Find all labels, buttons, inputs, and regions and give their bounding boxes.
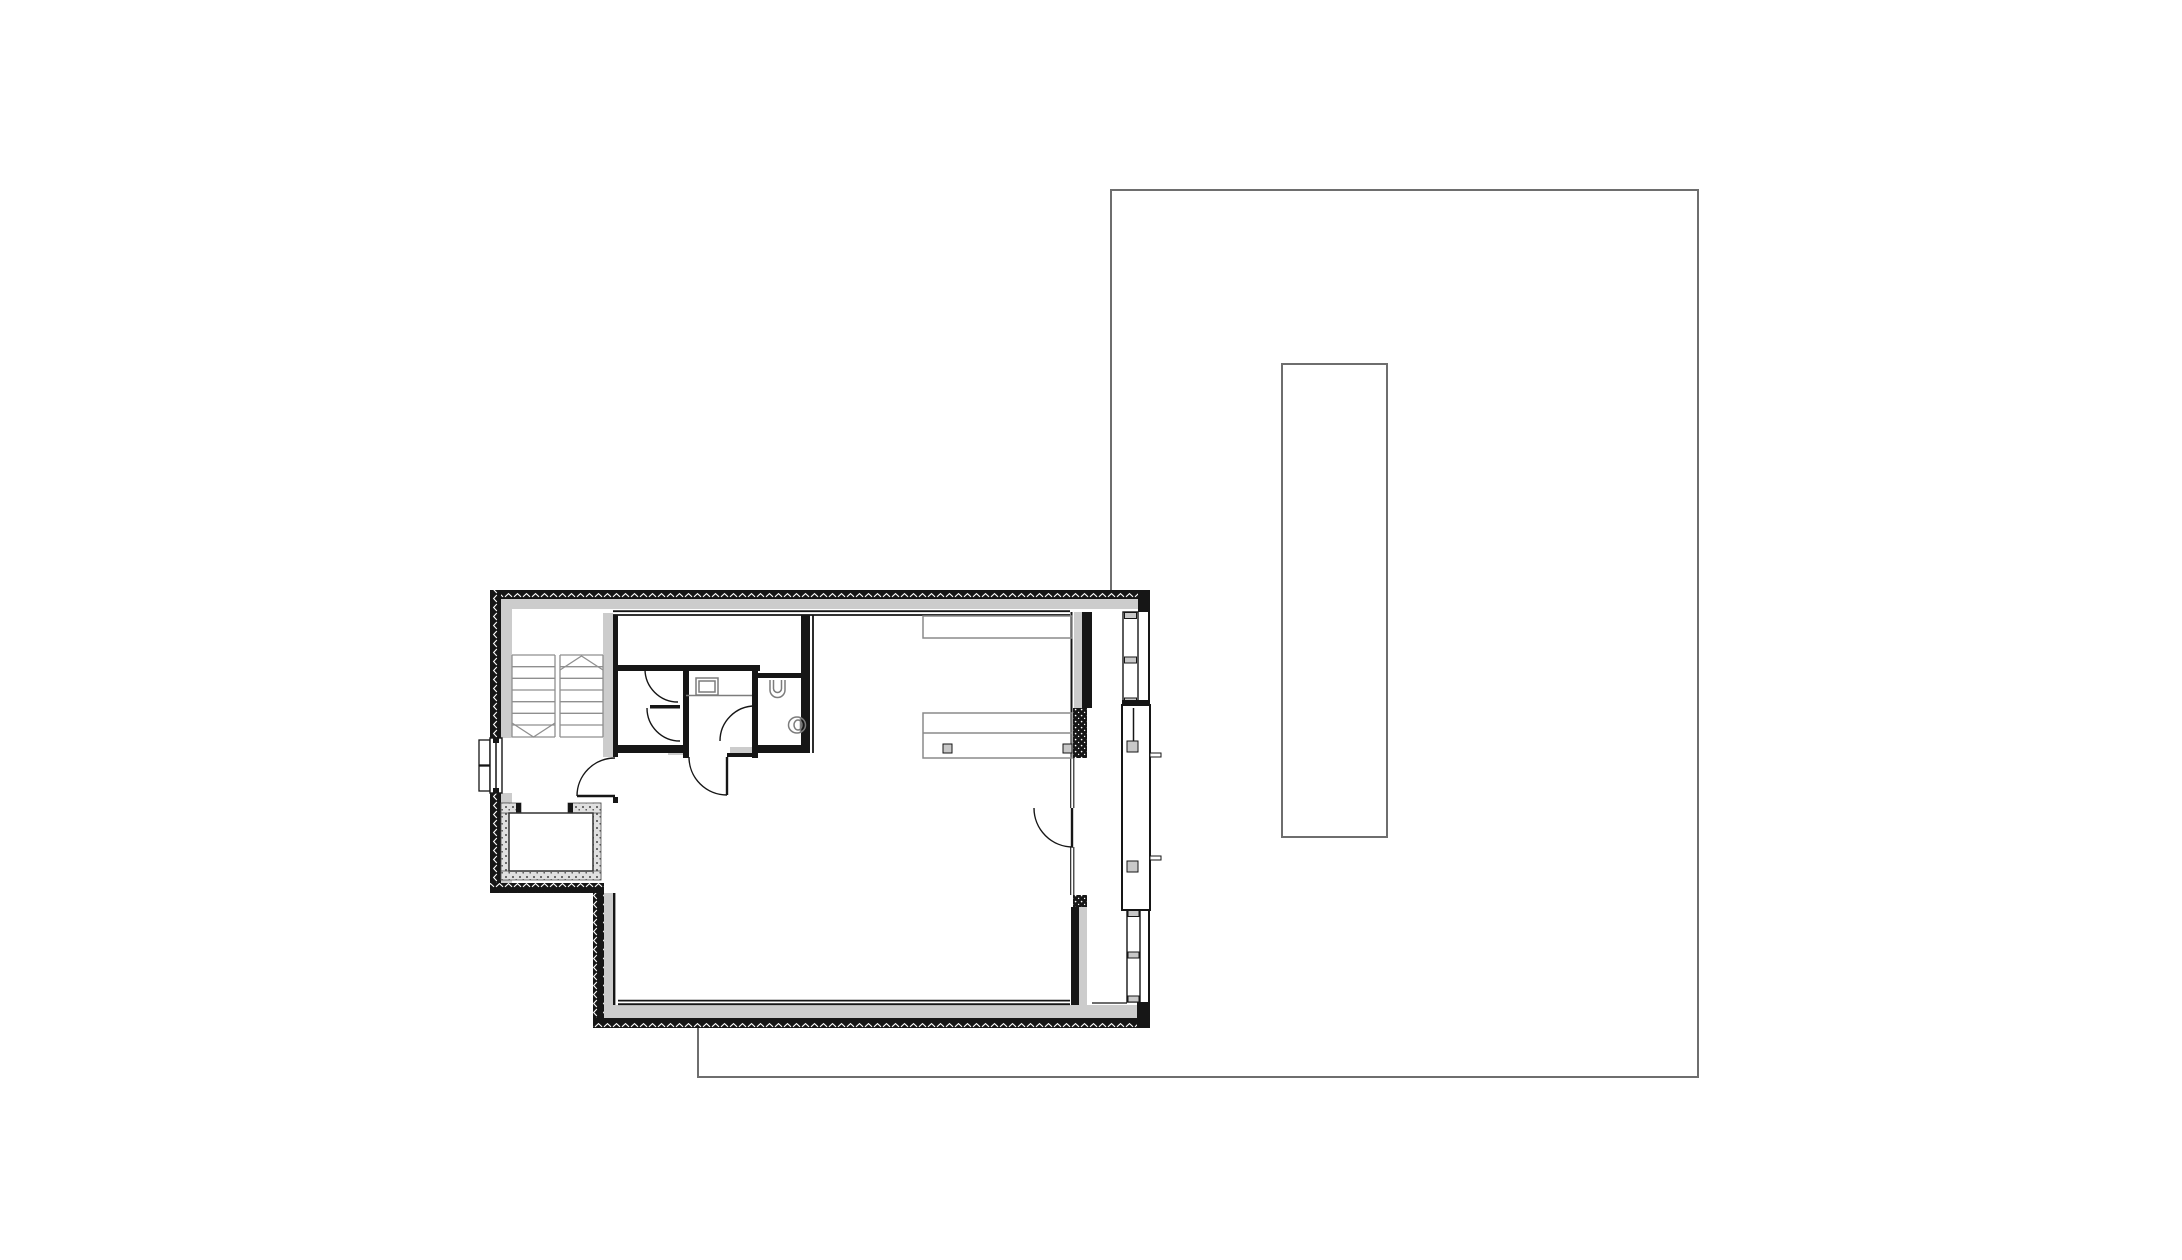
site-boundary [698, 190, 1698, 1077]
hob-left [943, 744, 952, 753]
fixtures [686, 678, 806, 733]
storage-south-wall [613, 745, 686, 753]
loggia-window-south [1127, 910, 1140, 1002]
furniture [923, 616, 1072, 758]
living-room-north-wall [613, 611, 1070, 615]
finish-bottom [604, 1005, 1138, 1018]
west-window [479, 738, 502, 793]
mullion-2 [1125, 657, 1137, 663]
mullion-4 [1128, 911, 1139, 917]
shaft-wall-south [501, 871, 601, 880]
wall-south [593, 1018, 1150, 1028]
wall-north [490, 590, 1150, 599]
partition-glazing-2 [1071, 847, 1074, 895]
hall-door-stub [613, 797, 618, 803]
shaft-wall-west [501, 803, 509, 880]
skylight-opening [1282, 364, 1387, 837]
shaft-nub-right [568, 803, 573, 813]
stair-treads-right-flight [560, 655, 603, 737]
vestibule-south-wall [727, 753, 752, 757]
stair-wall-finish [603, 613, 613, 757]
shower-west-wall [683, 671, 689, 758]
finish-right-upper [1074, 612, 1082, 708]
stair-arrow-up [560, 656, 603, 670]
toilet [770, 680, 785, 698]
kitchen-counter [923, 713, 1072, 758]
stair-treads-left-flight [512, 655, 555, 737]
partition-pier-1 [1073, 708, 1087, 758]
interior-walls [613, 611, 1070, 1005]
shower-room-door [720, 706, 755, 741]
wall-west-lower [593, 893, 604, 1028]
shower-east-wall [752, 671, 758, 758]
partition-glazing-1 [1071, 758, 1074, 808]
mullion-6 [1128, 996, 1139, 1002]
window-casing-outer-1 [479, 740, 490, 765]
window-casing-outer-2 [479, 766, 490, 791]
window-cap-bottom [493, 788, 499, 793]
partition-pier-2 [1073, 895, 1087, 907]
wall-west-mid [490, 793, 501, 888]
door-handle-2 [1127, 861, 1138, 872]
corridor-east-wall [801, 615, 810, 753]
shaft-nub-left [516, 803, 521, 813]
storage-partition-stub [650, 705, 680, 709]
bathroom-north-wall [613, 665, 760, 671]
partition-solid-upper [1082, 612, 1092, 708]
wall-step [490, 883, 604, 893]
hob-right [1063, 744, 1072, 753]
facade-tick-1 [1150, 753, 1161, 757]
storage-west-wall [613, 671, 618, 753]
wc-south-wall [758, 745, 810, 753]
wall-west-upper [490, 590, 501, 738]
finish-left-bottom [604, 893, 613, 1005]
floor-plan-sheet [0, 0, 2182, 1260]
loggia-window-north [1123, 612, 1138, 705]
loggia-door [1034, 808, 1073, 847]
door-handle-1 [1127, 741, 1138, 752]
mullion-1 [1125, 613, 1137, 619]
hall-door [577, 758, 615, 796]
living-room-south-face [618, 1001, 1070, 1005]
wc-north-wall [758, 673, 801, 678]
mullion-5 [1128, 952, 1139, 958]
finish-right-lower [1079, 907, 1087, 1005]
shower-tray [686, 678, 752, 696]
shaft-opening [509, 813, 593, 871]
wardrobe [923, 616, 1072, 638]
floor-plan-drawing [0, 0, 2182, 1260]
window-cap-top [493, 738, 499, 743]
finish-top [504, 599, 1138, 609]
shaft [501, 803, 601, 880]
shaft-wall-east [593, 803, 601, 880]
facade-tick-2 [1150, 856, 1161, 860]
finish-left-upper [501, 599, 512, 738]
loggia-door-column [1122, 705, 1161, 910]
vestibule-door [689, 757, 727, 795]
terrace-boundary-line [698, 190, 1698, 1077]
staircase [512, 655, 603, 737]
storage-door-lower [647, 708, 680, 741]
storage-door-top [645, 669, 678, 703]
partition-solid-lower [1071, 907, 1079, 1005]
